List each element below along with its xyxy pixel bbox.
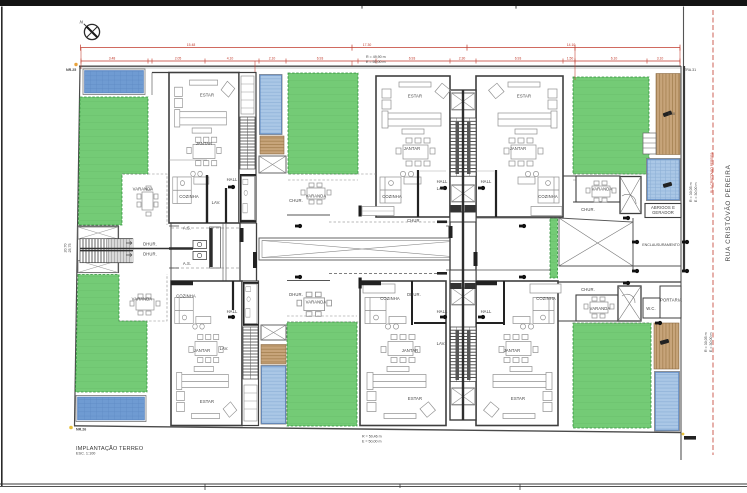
svg-text:ESTAR: ESTAR <box>200 399 214 404</box>
svg-text:LAV.: LAV. <box>437 341 446 346</box>
svg-text:HALL: HALL <box>481 179 492 184</box>
svg-text:COZINHA: COZINHA <box>382 194 402 199</box>
svg-text:E = 55,00 m: E = 55,00 m <box>366 60 385 64</box>
svg-text:2.30: 2.30 <box>459 57 466 61</box>
svg-text:6.93: 6.93 <box>317 57 324 61</box>
svg-text:HALL: HALL <box>481 309 492 314</box>
svg-text:N: N <box>80 20 84 26</box>
svg-text:RUA CRISTÓVÃO PEREIRA: RUA CRISTÓVÃO PEREIRA <box>723 164 732 261</box>
svg-text:HALL: HALL <box>437 309 448 314</box>
svg-text:LAV.: LAV. <box>212 200 221 205</box>
svg-text:ENCLAUSURAMENTO: ENCLAUSURAMENTO <box>642 243 680 247</box>
svg-text:CHUR.: CHUR. <box>581 287 595 292</box>
svg-text:VARANDA: VARANDA <box>306 194 327 199</box>
svg-text:DHUR.: DHUR. <box>143 242 157 247</box>
svg-text:3.10: 3.10 <box>657 57 664 61</box>
svg-text:GERADOR: GERADOR <box>652 210 674 215</box>
svg-text:20,70: 20,70 <box>64 244 68 253</box>
svg-text:W.C.: W.C. <box>646 306 655 311</box>
svg-text:ESC. 1:100: ESC. 1:100 <box>76 452 95 456</box>
svg-text:CHUR.: CHUR. <box>581 207 595 212</box>
svg-text:COZINHA: COZINHA <box>538 194 558 199</box>
svg-text:4.10: 4.10 <box>227 57 234 61</box>
svg-text:14.10: 14.10 <box>567 43 576 47</box>
svg-text:R = 49,90 m: R = 49,90 m <box>366 55 386 59</box>
svg-text:VARANDA: VARANDA <box>592 187 613 192</box>
svg-text:HALL: HALL <box>227 177 238 182</box>
svg-text:6.10: 6.10 <box>668 112 675 116</box>
svg-text:COZINHA: COZINHA <box>380 296 400 301</box>
svg-text:2.10: 2.10 <box>269 57 276 61</box>
svg-text:NR.25: NR.25 <box>66 68 76 72</box>
svg-text:HALL: HALL <box>437 179 448 184</box>
svg-text:1.50: 1.50 <box>567 57 574 61</box>
svg-text:A.S.: A.S. <box>183 261 191 266</box>
svg-text:PORTARIA: PORTARIA <box>660 298 682 303</box>
svg-text:LAV.: LAV. <box>220 346 229 351</box>
svg-text:VARANDA: VARANDA <box>306 300 327 305</box>
svg-text:COZINHA: COZINHA <box>536 296 556 301</box>
svg-text:6.10: 6.10 <box>611 57 618 61</box>
svg-text:CHUR.: CHUR. <box>289 198 303 203</box>
svg-text:E = 30,00 m: E = 30,00 m <box>694 183 698 202</box>
svg-text:JANTAR: JANTAR <box>510 146 527 151</box>
svg-text:R = 50,46 m: R = 50,46 m <box>362 435 382 439</box>
svg-text:15.48: 15.48 <box>187 43 196 47</box>
svg-text:LAV.: LAV. <box>437 186 446 191</box>
svg-text:TRA.31: TRA.31 <box>684 68 696 72</box>
svg-text:JANTAR: JANTAR <box>196 141 213 146</box>
svg-text:JANTAR: JANTAR <box>404 146 421 151</box>
svg-text:VARANDA: VARANDA <box>590 306 611 311</box>
svg-text:25,75: 25,75 <box>68 244 72 253</box>
svg-text:JANTAR: JANTAR <box>194 348 211 353</box>
svg-text:NR.26: NR.26 <box>76 428 86 432</box>
svg-text:CHUR.: CHUR. <box>407 218 421 223</box>
svg-text:ESTAR: ESTAR <box>200 93 214 98</box>
svg-text:ESTAR: ESTAR <box>408 396 422 401</box>
svg-text:17.30: 17.30 <box>363 43 372 47</box>
svg-text:HALL: HALL <box>227 309 238 314</box>
svg-text:6.93: 6.93 <box>409 57 416 61</box>
svg-text:E = 50,00 m: E = 50,00 m <box>362 440 381 444</box>
svg-text:JANTAR: JANTAR <box>402 348 419 353</box>
svg-text:ESTAR: ESTAR <box>408 94 422 99</box>
svg-text:2.05: 2.05 <box>175 57 182 61</box>
svg-text:DHUR.: DHUR. <box>289 292 303 297</box>
svg-text:R = 30,05 m: R = 30,05 m <box>689 182 693 202</box>
svg-text:RUA CRISTOVAO PEREIRA: RUA CRISTOVAO PEREIRA <box>710 151 714 193</box>
svg-text:JANTAR: JANTAR <box>504 348 521 353</box>
svg-text:A.S.: A.S. <box>183 226 191 231</box>
svg-text:3.48: 3.48 <box>109 57 116 61</box>
svg-text:DHUR.: DHUR. <box>143 252 157 257</box>
svg-text:VARANDA: VARANDA <box>133 187 154 192</box>
svg-text:R = 30,05 m: R = 30,05 m <box>704 332 708 352</box>
svg-text:COZINHA: COZINHA <box>179 194 199 199</box>
svg-text:ESTAR: ESTAR <box>517 94 531 99</box>
svg-text:COZINHA: COZINHA <box>176 294 196 299</box>
svg-text:E = 30,00 m: E = 30,00 m <box>709 333 713 352</box>
svg-text:VARANDA: VARANDA <box>132 297 153 302</box>
svg-text:DHUR.: DHUR. <box>407 292 421 297</box>
svg-text:ESTAR: ESTAR <box>511 396 525 401</box>
svg-text:6.93: 6.93 <box>515 57 522 61</box>
